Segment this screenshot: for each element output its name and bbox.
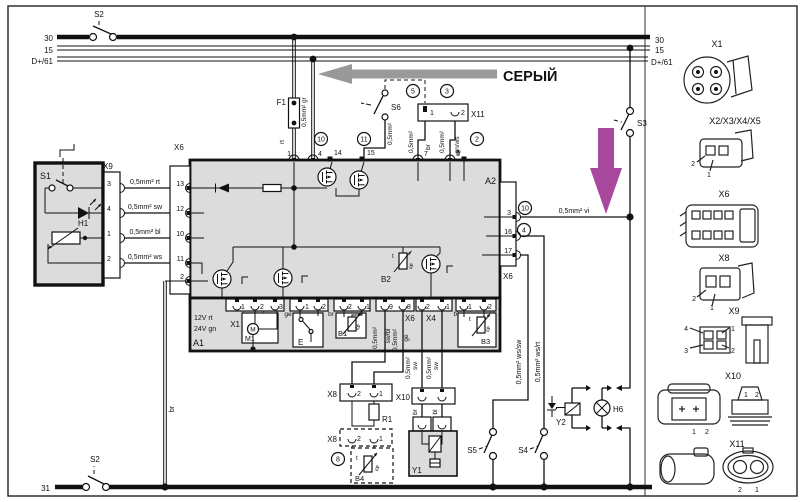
control-panel-s1 (35, 163, 103, 285)
sensor-b2-theta: ϑ (409, 264, 413, 271)
connector-x6-bottom-label: X6 (405, 314, 415, 323)
gallery-x9-pin1: 1 (731, 326, 735, 333)
supply-24v-label: 24V gn (194, 326, 216, 333)
x2-pin-1: 1 (305, 304, 309, 311)
x6l-pin-10: 10 (176, 231, 184, 238)
bus-d61-label-right: D+/61 (651, 58, 673, 67)
valve-y1-label: Y1 (412, 466, 422, 475)
sensor-b1-theta: ϑ (356, 325, 360, 332)
x1-pin-3: 3 (279, 304, 283, 311)
motor-m1-label: M1 (245, 336, 255, 343)
gallery-x8-label: X8 (718, 253, 729, 263)
connector-x8-dashed-label: X8 (327, 435, 337, 444)
switch-s3-label: S3 (637, 119, 647, 128)
wire-s6-label: 0,5mm² (387, 122, 394, 145)
connector-x4-label: X4 (426, 314, 436, 323)
x3-pin-2: 2 (488, 304, 492, 311)
gallery-x8-pin2: 2 (692, 296, 696, 303)
wire-pin9-gauge: 0,5mm² (372, 326, 379, 349)
x11-pin2: 2 (461, 110, 465, 117)
gallery-x10r-pin2: 2 (755, 392, 759, 399)
x3-pin-1: 1 (468, 304, 472, 311)
x9-pin-4: 4 (107, 206, 111, 213)
wire-pin8-color: ge (403, 334, 410, 342)
x11-pin1: 1 (430, 110, 434, 117)
ref-4: 4 (522, 228, 526, 235)
x4-pin-2: 2 (426, 304, 430, 311)
bus-30-label-left: 30 (44, 34, 53, 43)
gray-arrow-text: СЕРЫЙ (503, 67, 557, 85)
x5-wire-br-a: br (328, 311, 335, 318)
sensor-b3-label: B3 (481, 337, 490, 346)
sensor-b3 (458, 311, 496, 347)
switch-s2-top-label: S2 (94, 10, 104, 19)
wire-x11-2-gauge: 0,5mm² (439, 130, 446, 153)
x8-pin-1: 1 (379, 391, 383, 398)
ref-3: 3 (445, 89, 449, 96)
fuse-f1-label: F1 (277, 98, 287, 107)
x6l-pin-13: 13 (176, 181, 184, 188)
ref-8: 8 (336, 457, 340, 464)
lamp-h1-label: H1 (78, 219, 89, 228)
x8-pin-2: 2 (357, 391, 361, 398)
wire-x9-rt: 0,5mm² rt (130, 179, 160, 186)
gallery-x2345-pin2: 2 (691, 161, 695, 168)
x6r-pin-17: 17 (504, 248, 512, 255)
gallery-x2345-pin1: 1 (707, 172, 711, 179)
x1-pin-2: 2 (260, 304, 264, 311)
sensor-b2-t: t (392, 253, 394, 260)
sensor-b2-label: B2 (381, 275, 391, 284)
wire-x9-bl: 0,5mm² bl (129, 229, 161, 236)
connector-x6-right-label: X6 (503, 272, 513, 281)
ref-2: 2 (475, 137, 479, 144)
sensor-b3-theta: ϑ (486, 327, 490, 334)
wire-y1-br: br (412, 408, 419, 415)
x6r-pin-16: 16 (504, 229, 512, 236)
gallery-x9-pin3: 3 (684, 348, 688, 355)
ref-5: 5 (411, 89, 415, 96)
x2-wire-ge-a: ge (284, 311, 292, 318)
a2-pin-6: 6 (456, 150, 460, 157)
wire-x4-1-color: sw (433, 362, 440, 370)
wire-br-label: br (169, 405, 176, 412)
a2-pin-1: 1 (287, 151, 291, 158)
connector-x8 (340, 384, 392, 401)
switch-s2-bottom-label: S2 (90, 455, 100, 464)
wire-x4-2-color: sw (412, 362, 419, 370)
a1-connector-strips (226, 299, 496, 311)
motor-m-symbol: M (250, 327, 255, 334)
control-unit-a2 (190, 160, 500, 298)
connector-x1-label: X1 (230, 320, 240, 329)
x6l-pin-2: 2 (180, 274, 184, 281)
wire-vi-label: 0,5mm² vi (559, 208, 590, 215)
schematic-canvas: 30 15 D+/61 30 15 D+/61 S2 F1 rt 0,5mm² … (0, 0, 806, 502)
wire-x9-sw: 0,5mm² sw (128, 204, 163, 211)
ref-11: 11 (360, 137, 367, 144)
sensor-b4-theta: ϑ (375, 466, 379, 473)
gallery-x9-pin4: 4 (684, 326, 688, 333)
x6b-pin-8: 8 (407, 304, 411, 311)
control-panel-s1-label: S1 (40, 171, 51, 181)
resistor-r1-label: R1 (382, 415, 393, 424)
element-e-label: E (298, 338, 303, 347)
wire-x11-1-color: br (425, 143, 432, 150)
switch-s5-label: S5 (467, 446, 477, 455)
bus-d61-label-left: D+/61 (31, 57, 53, 66)
a2-pin-14: 14 (334, 150, 342, 157)
gallery-x10-label: X10 (725, 371, 741, 381)
gallery-x11-label: X11 (729, 439, 744, 449)
gallery-x11-pin1: 1 (755, 487, 759, 494)
gallery-x10l-pin2: 2 (705, 429, 709, 436)
gallery-x6-label: X6 (718, 189, 729, 199)
gallery-x2345-label: X2/X3/X4/X5 (709, 116, 761, 126)
x4-pin-1: 1 (446, 304, 450, 311)
wire-gr-label: 0,5mm² gr (301, 96, 308, 126)
ref-10b: 10 (521, 206, 529, 213)
gallery-x9-label: X9 (728, 306, 739, 316)
gallery-x9-pin2: 2 (731, 348, 735, 355)
connector-x6-left-label: X6 (174, 143, 184, 152)
switch-s4-label: S4 (518, 446, 528, 455)
solenoid-y2-label: Y2 (556, 418, 566, 427)
wire-pin9-color: sw/bl (385, 328, 392, 343)
sensor-b3-t: t (469, 316, 471, 323)
control-unit-a2-label: A2 (485, 176, 496, 186)
wire-y1-bl: bl (432, 409, 439, 415)
wire-x4-1-gauge: 0,5mm² (426, 356, 433, 379)
gallery-x1-label: X1 (711, 39, 722, 49)
wire-x11-1-gauge: 0,5mm² (408, 130, 415, 153)
gallery-x8-pin1: 1 (710, 305, 714, 312)
x9-pin-3: 3 (107, 181, 111, 188)
bus-30-label-right: 30 (655, 36, 664, 45)
gallery-x10r-pin1: 1 (744, 392, 748, 399)
sensor-b4-t: t (356, 455, 358, 462)
x8d-pin-1: 1 (379, 436, 383, 443)
gallery-x10l-pin1: 1 (692, 429, 696, 436)
wire-ws-rt-label: 0,5mm² ws/rt (535, 342, 542, 383)
unit-a1-label: A1 (193, 338, 204, 348)
wire-ws-sw-label: 0,5mm² ws/sw (516, 339, 523, 385)
bus-15-label-left: 15 (44, 46, 53, 55)
a2-pin-15: 15 (367, 150, 375, 157)
connector-x11-label: X11 (471, 110, 485, 119)
gallery-x11-pin2: 2 (738, 487, 742, 494)
lamp-h6-label: H6 (613, 405, 624, 414)
a2-pin-7: 7 (424, 151, 428, 158)
x5-pin-1: 1 (366, 304, 370, 311)
connector-x9-label: X9 (103, 162, 113, 171)
x9-pin-1: 1 (107, 231, 111, 238)
sensor-b1-label: B1 (338, 329, 347, 338)
sensor-b4-label: B4 (355, 474, 364, 483)
wire-x9-ws: 0,5mm² ws (128, 254, 163, 261)
switch-s6-label: S6 (391, 103, 401, 112)
wiring-diagram-page: 30 15 D+/61 30 15 D+/61 S2 F1 rt 0,5mm² … (0, 0, 806, 502)
supply-12v-label: 12V rt (194, 315, 213, 322)
x6l-pin-12: 12 (176, 206, 184, 213)
x5-pin-2: 2 (348, 304, 352, 311)
x8d-pin-2: 2 (357, 436, 361, 443)
x9-pin-2: 2 (107, 256, 111, 263)
connector-x8-label: X8 (327, 390, 337, 399)
wire-x4-2-gauge: 0,5mm² (405, 356, 412, 379)
x6l-pin-11: 11 (177, 256, 184, 263)
wire-pin8-gauge: 0,5mm² (392, 328, 399, 351)
bus-31-label: 31 (41, 484, 50, 493)
a2-pin-4: 4 (318, 151, 322, 158)
bus-15-label-right: 15 (655, 46, 664, 55)
wire-rt-label: rt (279, 140, 286, 144)
ref-10: 10 (317, 137, 325, 144)
x2-pin-2: 2 (322, 304, 326, 311)
x6r-pin-3: 3 (507, 210, 511, 217)
x1-pin-1: 1 (241, 304, 245, 311)
x6b-pin-9: 9 (389, 304, 393, 311)
connector-x10-label: X10 (396, 393, 411, 402)
